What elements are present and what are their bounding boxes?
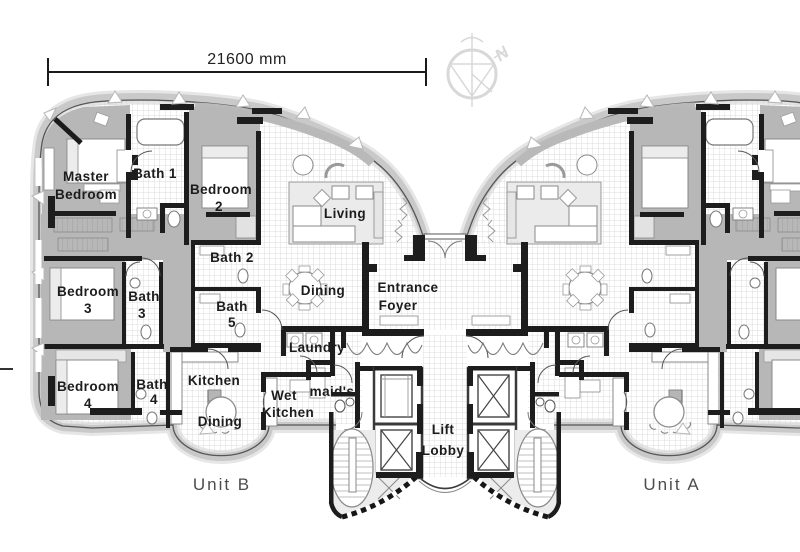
svg-text:Unit B: Unit B bbox=[193, 475, 251, 494]
svg-text:Lobby: Lobby bbox=[422, 443, 465, 458]
svg-text:Bath: Bath bbox=[128, 289, 160, 304]
svg-text:5: 5 bbox=[228, 315, 236, 330]
svg-text:Bedroom: Bedroom bbox=[57, 379, 119, 394]
svg-text:Bath 2: Bath 2 bbox=[210, 250, 254, 265]
svg-text:Kitchen: Kitchen bbox=[262, 405, 314, 420]
svg-text:Master: Master bbox=[63, 169, 109, 184]
svg-text:3: 3 bbox=[84, 301, 92, 316]
svg-text:3: 3 bbox=[138, 306, 146, 321]
svg-text:Living: Living bbox=[324, 206, 366, 221]
svg-text:2: 2 bbox=[215, 199, 223, 214]
svg-text:Dining: Dining bbox=[198, 414, 242, 429]
svg-text:Bath: Bath bbox=[216, 299, 248, 314]
svg-text:Foyer: Foyer bbox=[379, 298, 418, 313]
svg-text:Entrance: Entrance bbox=[378, 280, 439, 295]
svg-text:4: 4 bbox=[150, 392, 158, 407]
svg-text:Lift: Lift bbox=[432, 422, 455, 437]
svg-text:4: 4 bbox=[84, 396, 92, 411]
svg-text:Kitchen: Kitchen bbox=[188, 373, 240, 388]
svg-text:maid's: maid's bbox=[310, 384, 355, 399]
svg-text:Laundry: Laundry bbox=[289, 340, 345, 355]
svg-text:Bedroom: Bedroom bbox=[190, 182, 252, 197]
svg-text:Dining: Dining bbox=[301, 283, 345, 298]
svg-text:Unit A: Unit A bbox=[643, 475, 700, 494]
svg-text:Bedroom: Bedroom bbox=[55, 187, 117, 202]
svg-text:21600 mm: 21600 mm bbox=[207, 51, 287, 68]
svg-text:Bath 1: Bath 1 bbox=[133, 166, 177, 181]
svg-text:Bedroom: Bedroom bbox=[57, 284, 119, 299]
svg-text:Bath: Bath bbox=[136, 377, 168, 392]
svg-text:Wet: Wet bbox=[271, 388, 297, 403]
